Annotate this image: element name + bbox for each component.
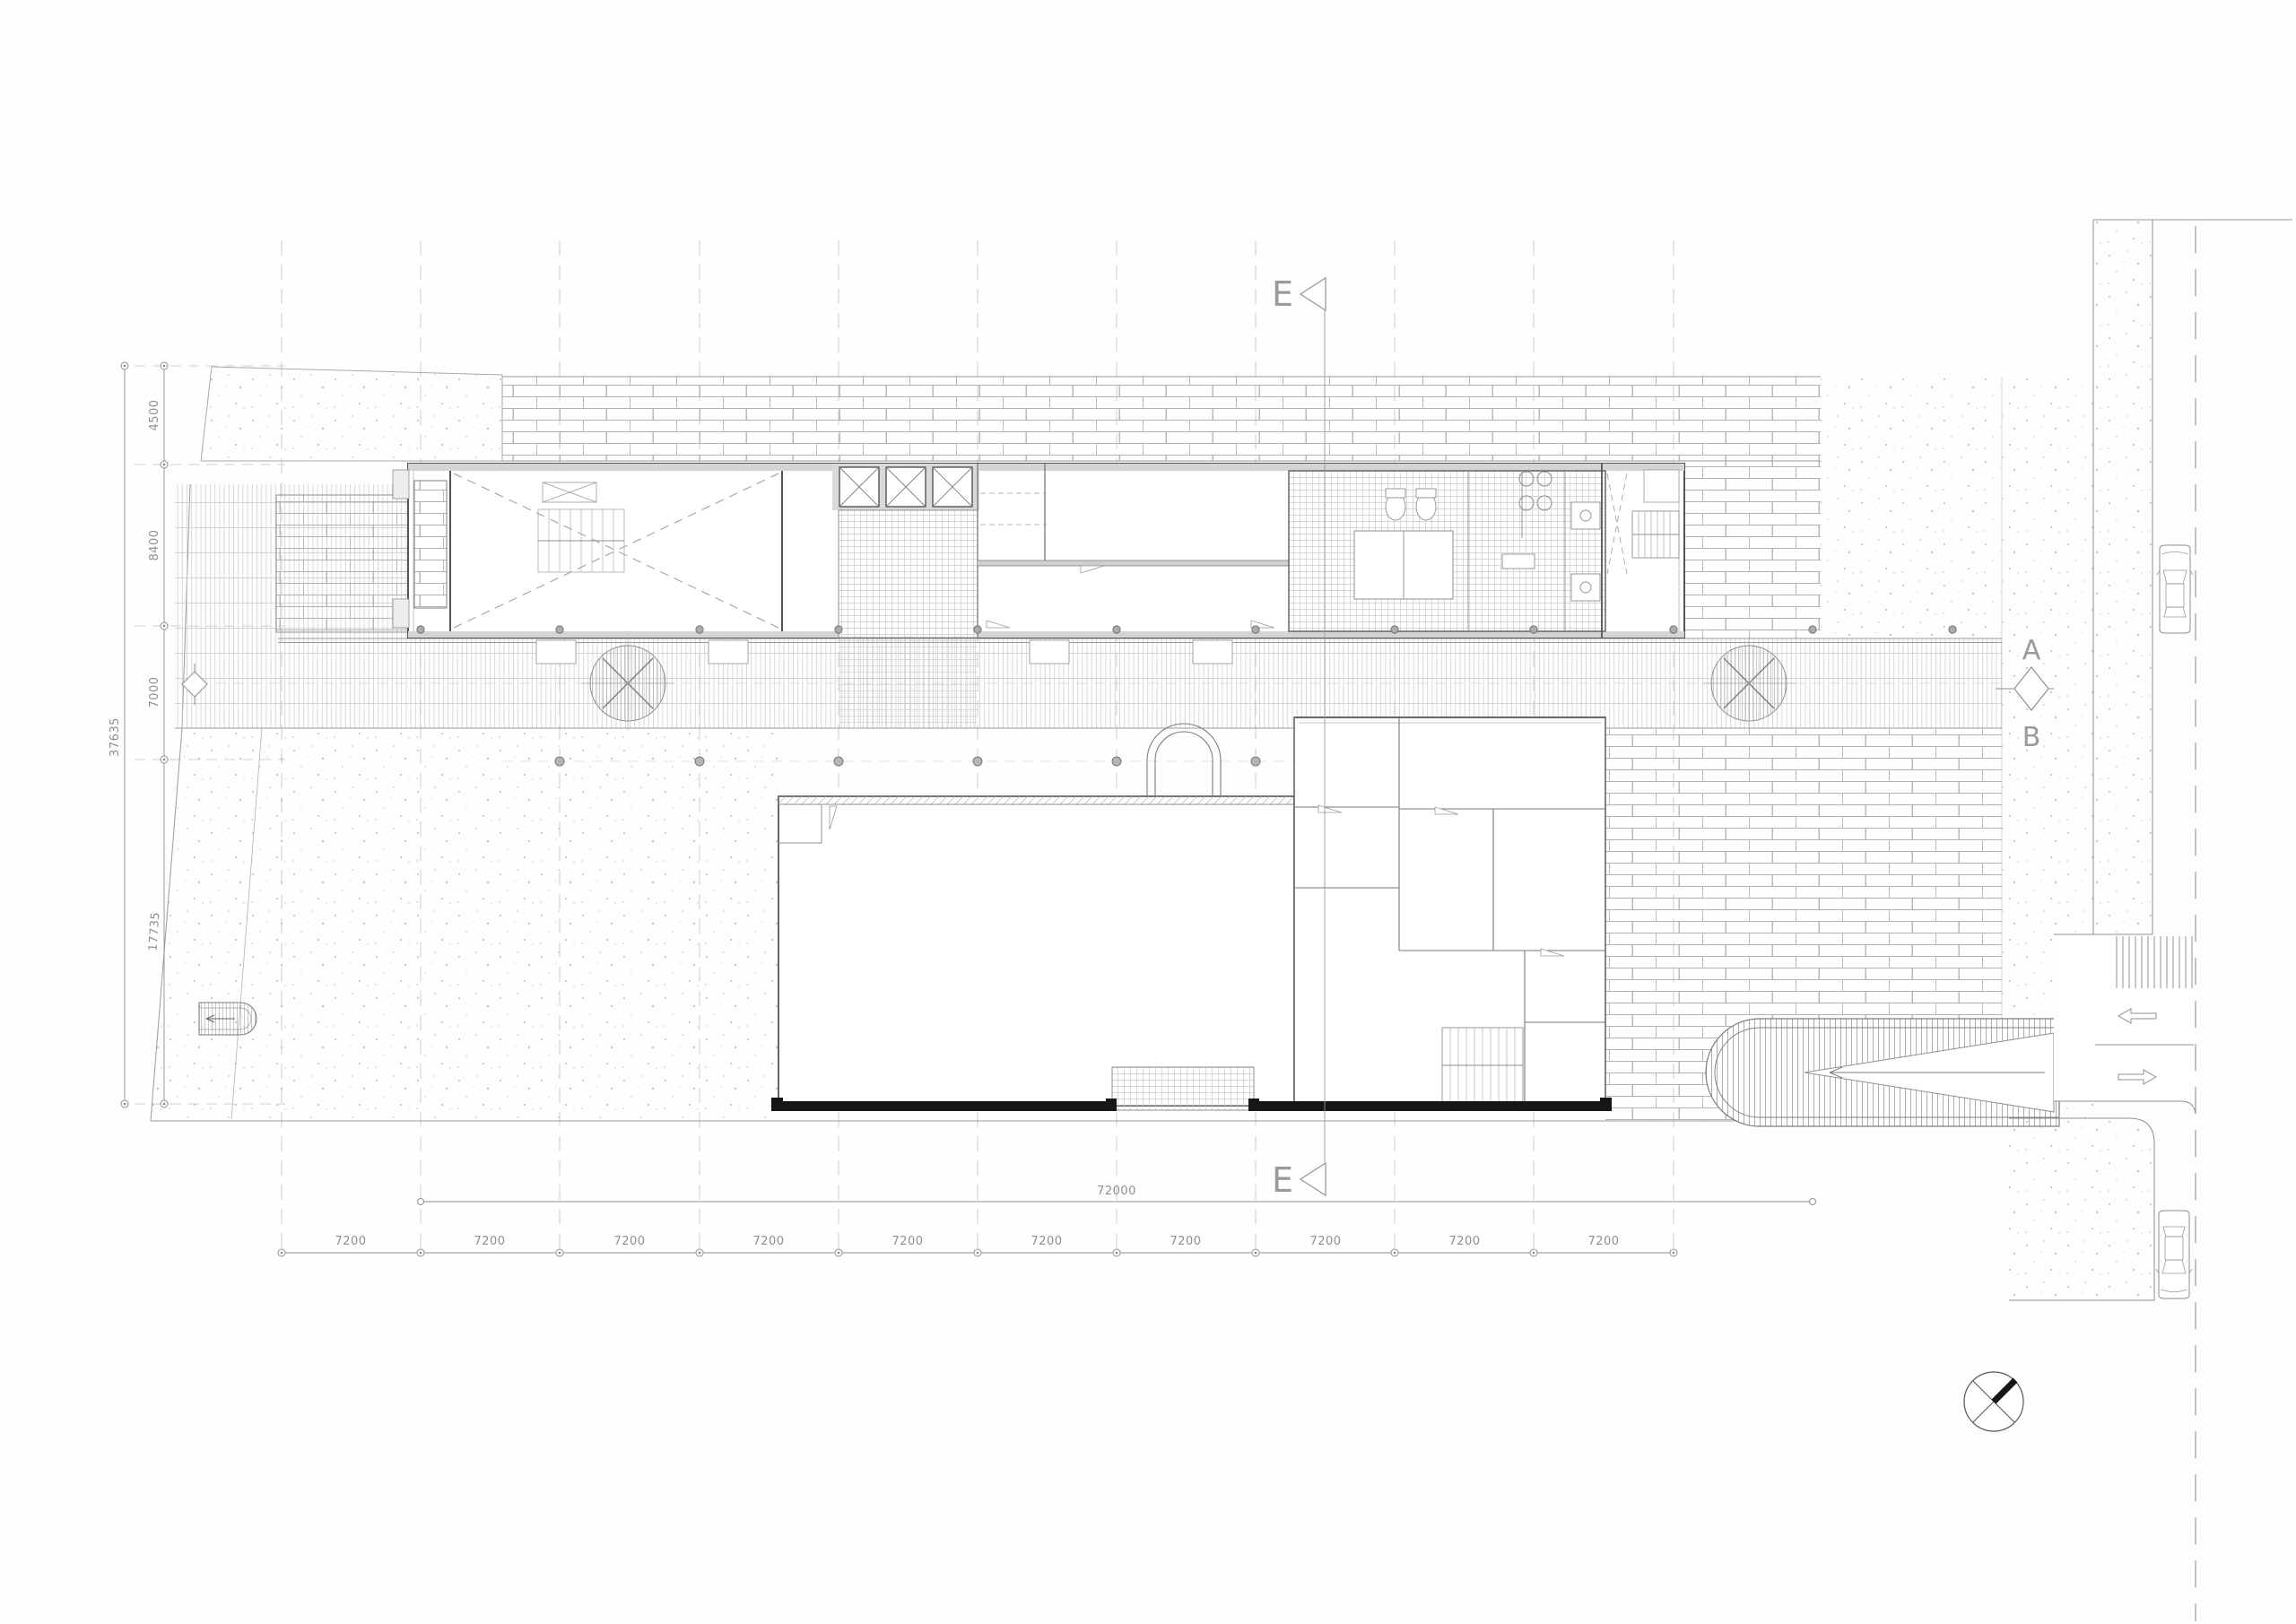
elevator-bank bbox=[832, 464, 979, 510]
dim-total-left: 37635 bbox=[109, 717, 122, 757]
floor-plan-drawing: E E A B 4500 8400 7000 17735 37635 7200 … bbox=[0, 0, 2296, 1624]
lobby bbox=[839, 510, 978, 638]
underground-stair-left bbox=[199, 1003, 257, 1035]
upper-building bbox=[393, 464, 1684, 638]
shaft bbox=[414, 481, 447, 608]
section-letter: E bbox=[1272, 1160, 1293, 1200]
dim-label: 7200 bbox=[1309, 1235, 1341, 1248]
dim-label: 7200 bbox=[1448, 1235, 1480, 1248]
dim-label: 7200 bbox=[474, 1235, 505, 1248]
room-complex bbox=[1294, 717, 1605, 1106]
section-letter-b: B bbox=[2022, 722, 2041, 753]
dim-chain-bottom bbox=[278, 1249, 1677, 1256]
wet-block bbox=[1289, 471, 1605, 631]
north-compass-icon bbox=[1964, 1372, 2023, 1431]
dim-label: 7200 bbox=[1031, 1235, 1062, 1248]
wall-band-bottom bbox=[408, 631, 1684, 638]
site-plan-sheet: E E A B 4500 8400 7000 17735 37635 7200 … bbox=[0, 0, 2296, 1624]
brick-band-top bbox=[502, 377, 1821, 461]
brick-court-left bbox=[276, 495, 411, 632]
canopy-area bbox=[201, 367, 502, 461]
car-icon bbox=[2156, 1211, 2192, 1298]
wall-hatched bbox=[778, 796, 1294, 804]
dim-label: 7200 bbox=[613, 1235, 645, 1248]
dim-label: 7200 bbox=[1170, 1235, 1201, 1248]
dim-label: 17735 bbox=[146, 911, 162, 951]
sidewalk-lower bbox=[2009, 1118, 2154, 1300]
entrance-vestibule bbox=[1112, 1067, 1254, 1110]
lower-building bbox=[771, 717, 1612, 1111]
section-letter-a: A bbox=[2022, 635, 2041, 666]
section-marker-e-top: E bbox=[1272, 274, 1326, 314]
section-marker-e-bottom: E bbox=[1272, 1160, 1326, 1200]
dim-label: 7200 bbox=[891, 1235, 923, 1248]
entry-path bbox=[839, 638, 978, 728]
lawn-area bbox=[151, 728, 778, 1121]
dim-label: 7200 bbox=[1587, 1235, 1619, 1248]
dim-label: 8400 bbox=[148, 529, 161, 560]
wall-band-top bbox=[408, 464, 1684, 471]
sidewalk-upper bbox=[2093, 220, 2152, 934]
car-icon bbox=[2157, 545, 2193, 633]
section-letter: E bbox=[1272, 274, 1293, 314]
dim-label: 7200 bbox=[752, 1235, 784, 1248]
dim-label: 7000 bbox=[148, 676, 161, 708]
dim-label: 4500 bbox=[148, 399, 161, 430]
dim-label: 7200 bbox=[335, 1235, 366, 1248]
parking-ramp bbox=[1706, 1019, 2059, 1126]
dim-total-bottom: 72000 bbox=[1097, 1185, 1136, 1198]
